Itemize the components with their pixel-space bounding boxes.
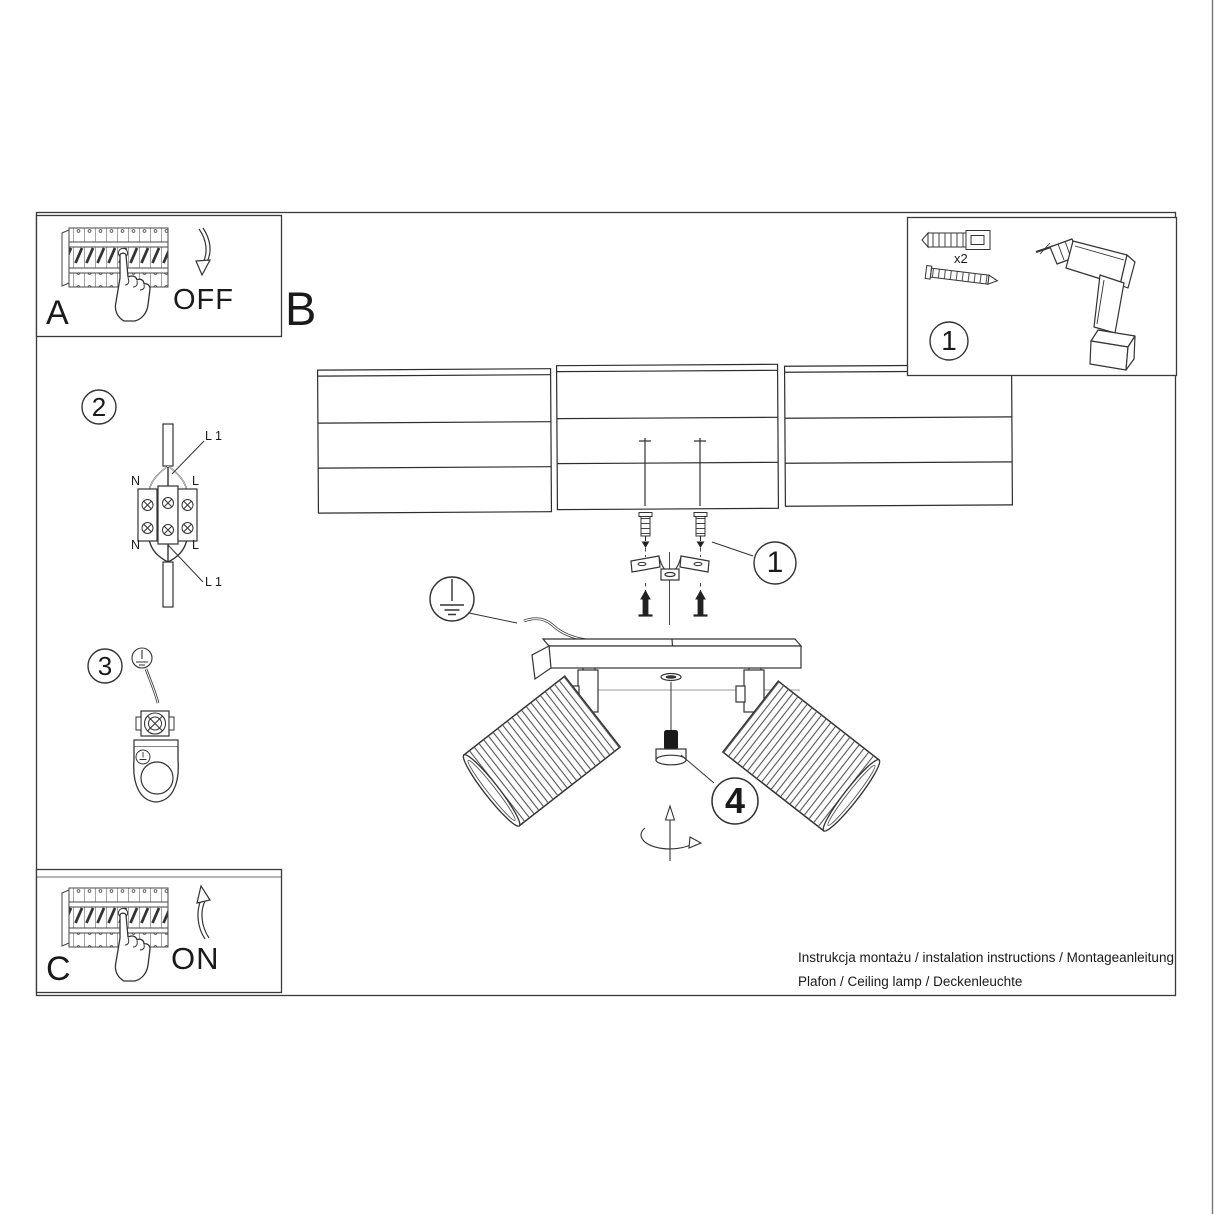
fixing-screw-icon: [694, 591, 708, 616]
footer-line-1: Instrukcja montażu / instalation instruc…: [798, 946, 1174, 970]
terminal-block-diagram: [82, 390, 204, 607]
off-label: OFF: [173, 284, 234, 317]
wire-label-l1-bottom: L 1: [205, 575, 222, 589]
wire-label-n-top: N: [131, 474, 140, 488]
step-2-badge: 2: [92, 394, 106, 420]
breaker-panel-icon: [62, 228, 168, 287]
ceiling-panel-right: [785, 365, 1013, 506]
wall-anchor-icon: [639, 513, 652, 548]
ceiling-panel-left: [318, 369, 552, 513]
adjustment-knob-icon: [656, 682, 714, 783]
wire-label-l-top: L: [192, 474, 199, 488]
instruction-sheet: A OFF B C ON 1 1 2 3 4 x2 L 1 N L N L L …: [0, 0, 1214, 1214]
fixing-screw-icon: [639, 591, 653, 616]
step-1-badge: 1: [767, 548, 784, 578]
breaker-panel-icon: [62, 888, 168, 947]
step-4-badge: 4: [725, 783, 745, 819]
footer-line-2: Plafon / Ceiling lamp / Deckenleuchte: [798, 970, 1022, 994]
ground-wire: [524, 619, 590, 641]
rotation-arrow-icon: [641, 806, 701, 861]
wire-label-l1-top: L 1: [205, 429, 222, 443]
step-1-badge-tools: 1: [941, 327, 957, 355]
earth-symbol-icon: [430, 577, 517, 623]
wire-label-n-bottom: N: [131, 538, 140, 552]
wall-anchor-icon: [694, 513, 707, 548]
anchor-qty-label: x2: [954, 251, 968, 266]
on-label: ON: [171, 941, 220, 977]
wall-plug-icon: [922, 231, 990, 250]
wire-label-l-bottom: L: [192, 538, 199, 552]
step-3-badge: 3: [98, 653, 112, 679]
section-b-label: B: [285, 281, 316, 336]
ceiling-panels: [318, 363, 1013, 513]
diagram-linework: [0, 0, 1214, 1214]
ceiling-panel-middle: [557, 364, 779, 509]
earth-symbol-small-icon: [132, 648, 152, 668]
panel-c-label: C: [46, 950, 71, 989]
step-1-callout: [712, 542, 796, 584]
panel-a-label: A: [46, 294, 69, 333]
